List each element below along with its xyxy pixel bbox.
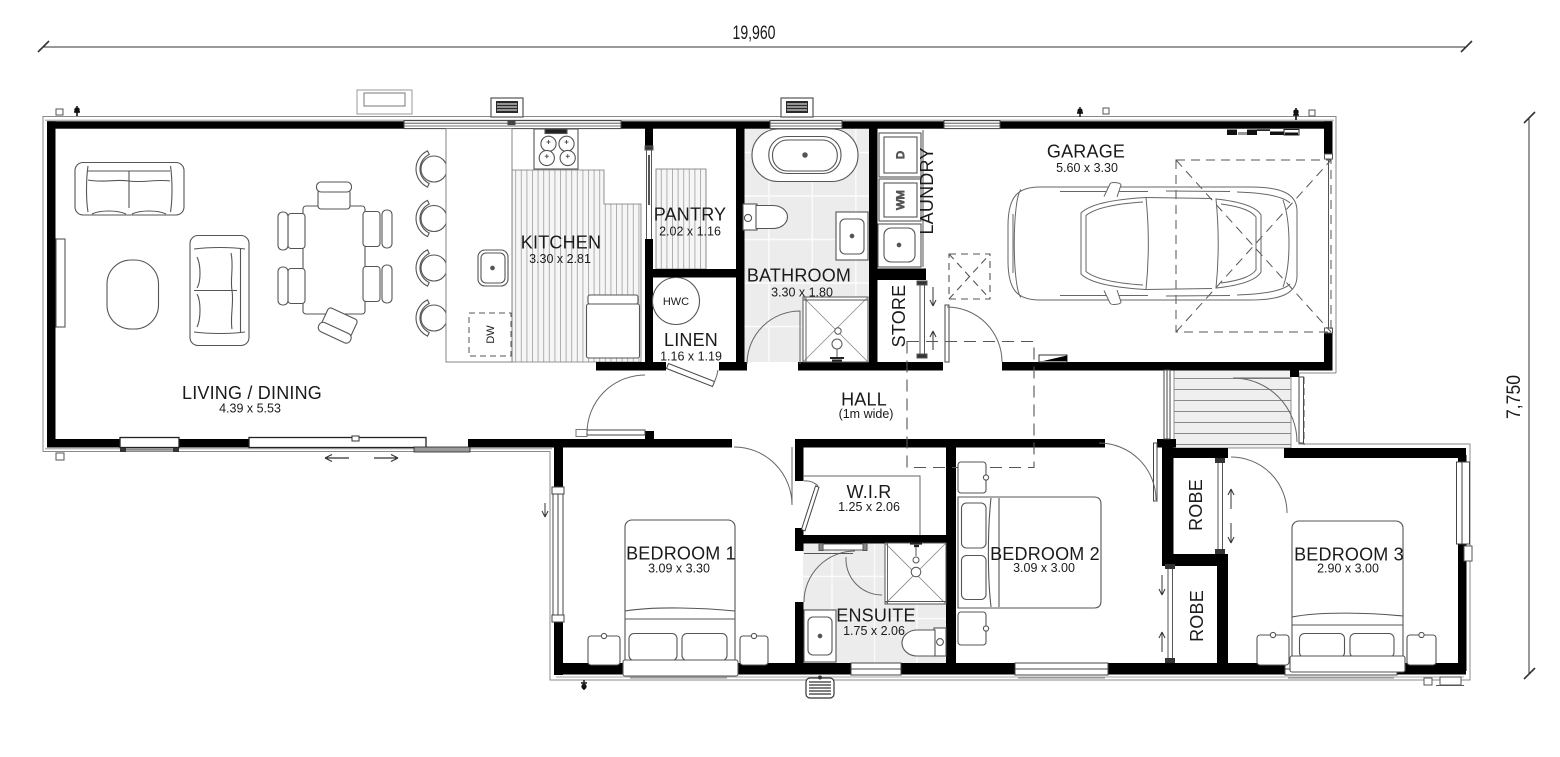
svg-text:2.02 x 1.16: 2.02 x 1.16 — [659, 225, 721, 239]
svg-text:LIVING / DINING: LIVING / DINING — [182, 383, 322, 403]
svg-text:PANTRY: PANTRY — [654, 205, 727, 225]
svg-text:STORE: STORE — [889, 285, 909, 348]
svg-text:W.I.R: W.I.R — [847, 482, 892, 502]
svg-text:5.60 x 3.30: 5.60 x 3.30 — [1056, 161, 1118, 175]
svg-text:DW: DW — [485, 325, 497, 344]
svg-text:ROBE: ROBE — [1187, 590, 1207, 642]
svg-text:HWC: HWC — [663, 296, 689, 308]
svg-text:WM: WM — [895, 190, 907, 210]
svg-text:2.90 x 3.00: 2.90 x 3.00 — [1317, 562, 1379, 576]
svg-text:LAUNDRY: LAUNDRY — [917, 147, 937, 234]
svg-text:1.75 x 2.06: 1.75 x 2.06 — [843, 624, 905, 638]
svg-text:ROBE: ROBE — [1186, 479, 1206, 531]
svg-text:3.09 x 3.00: 3.09 x 3.00 — [1013, 561, 1075, 575]
svg-text:BEDROOM 1: BEDROOM 1 — [626, 544, 736, 564]
svg-text:BATHROOM: BATHROOM — [747, 266, 851, 286]
svg-text:3.30 x 1.80: 3.30 x 1.80 — [771, 286, 833, 300]
svg-text:LINEN: LINEN — [664, 330, 718, 350]
svg-text:3.09 x 3.30: 3.09 x 3.30 — [648, 562, 710, 576]
svg-text:1.25 x 2.06: 1.25 x 2.06 — [838, 500, 900, 514]
svg-text:19,960: 19,960 — [733, 23, 776, 44]
svg-text:1.16 x 1.19: 1.16 x 1.19 — [660, 350, 722, 364]
svg-text:7,750: 7,750 — [1504, 375, 1525, 419]
svg-text:KITCHEN: KITCHEN — [521, 233, 601, 253]
svg-text:3.30 x 2.81: 3.30 x 2.81 — [529, 252, 591, 266]
svg-text:4.39 x 5.53: 4.39 x 5.53 — [219, 402, 281, 416]
svg-text:(1m wide): (1m wide) — [839, 407, 894, 421]
svg-text:D: D — [895, 151, 907, 159]
svg-text:GARAGE: GARAGE — [1047, 142, 1125, 162]
svg-text:ENSUITE: ENSUITE — [836, 606, 915, 626]
